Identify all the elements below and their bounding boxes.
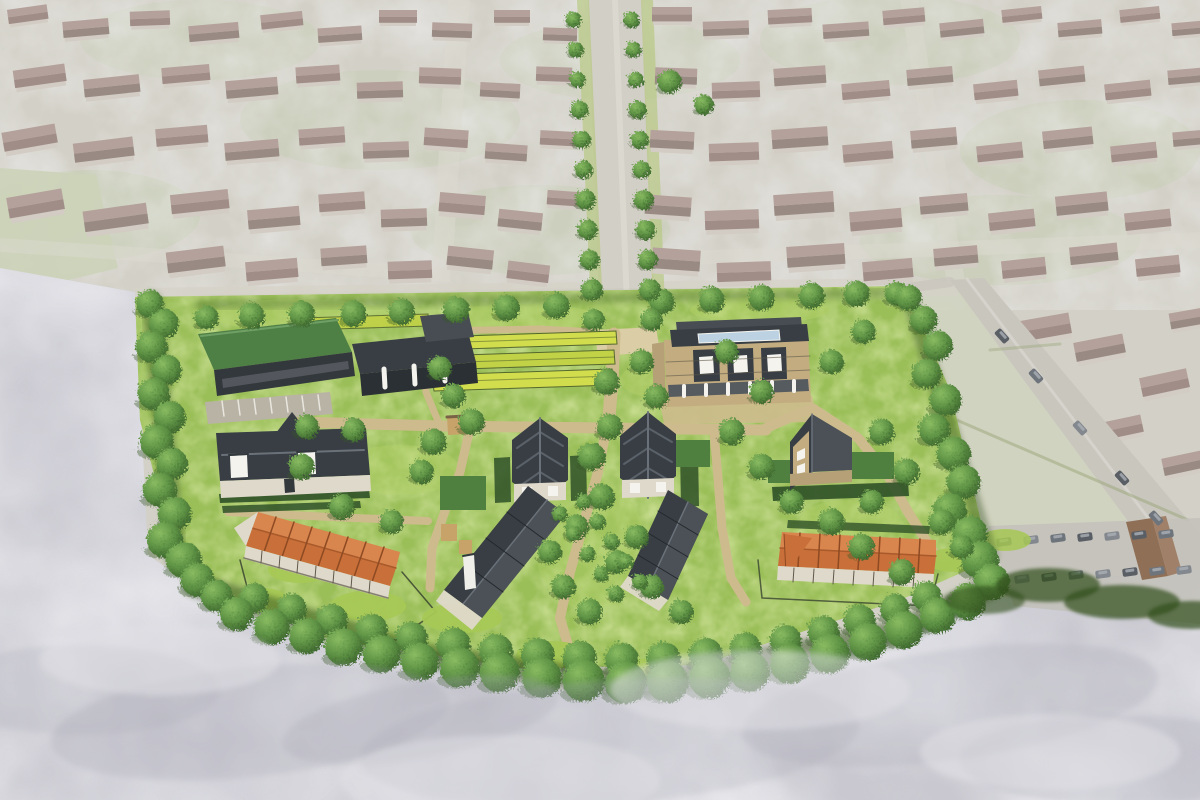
- aerial-site-plan-render: [0, 0, 1200, 800]
- architectural-render-canvas: Aerial 3D architectural visualisation of…: [0, 0, 1200, 800]
- apartment-building: [652, 317, 811, 408]
